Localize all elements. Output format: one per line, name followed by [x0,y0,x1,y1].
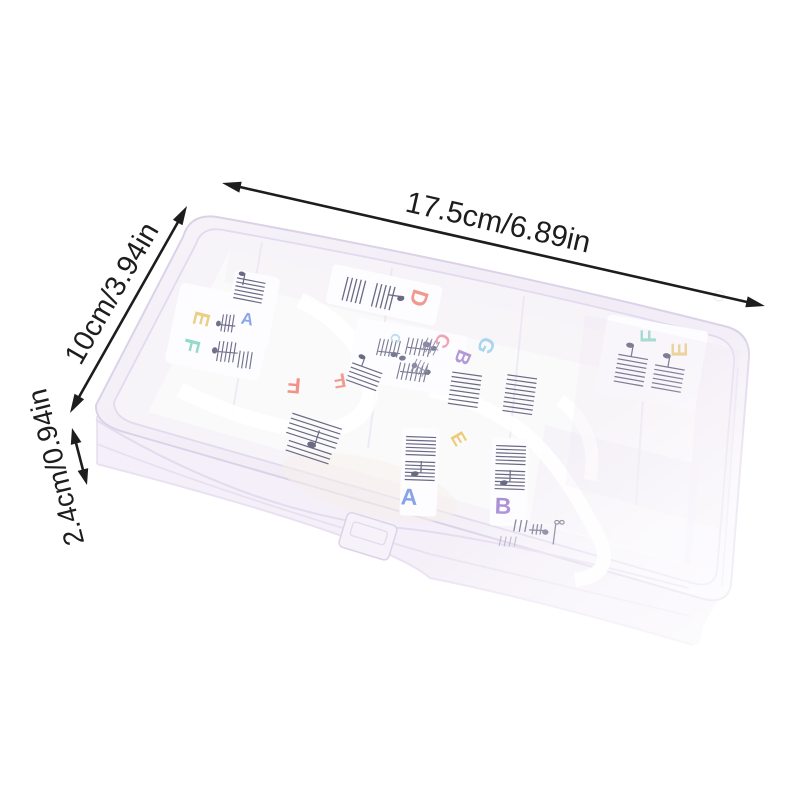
svg-text:17.5cm/6.89in: 17.5cm/6.89in [403,186,594,260]
svg-text:2.4cm/0.94in: 2.4cm/0.94in [21,386,90,549]
svg-text:F: F [286,372,302,398]
